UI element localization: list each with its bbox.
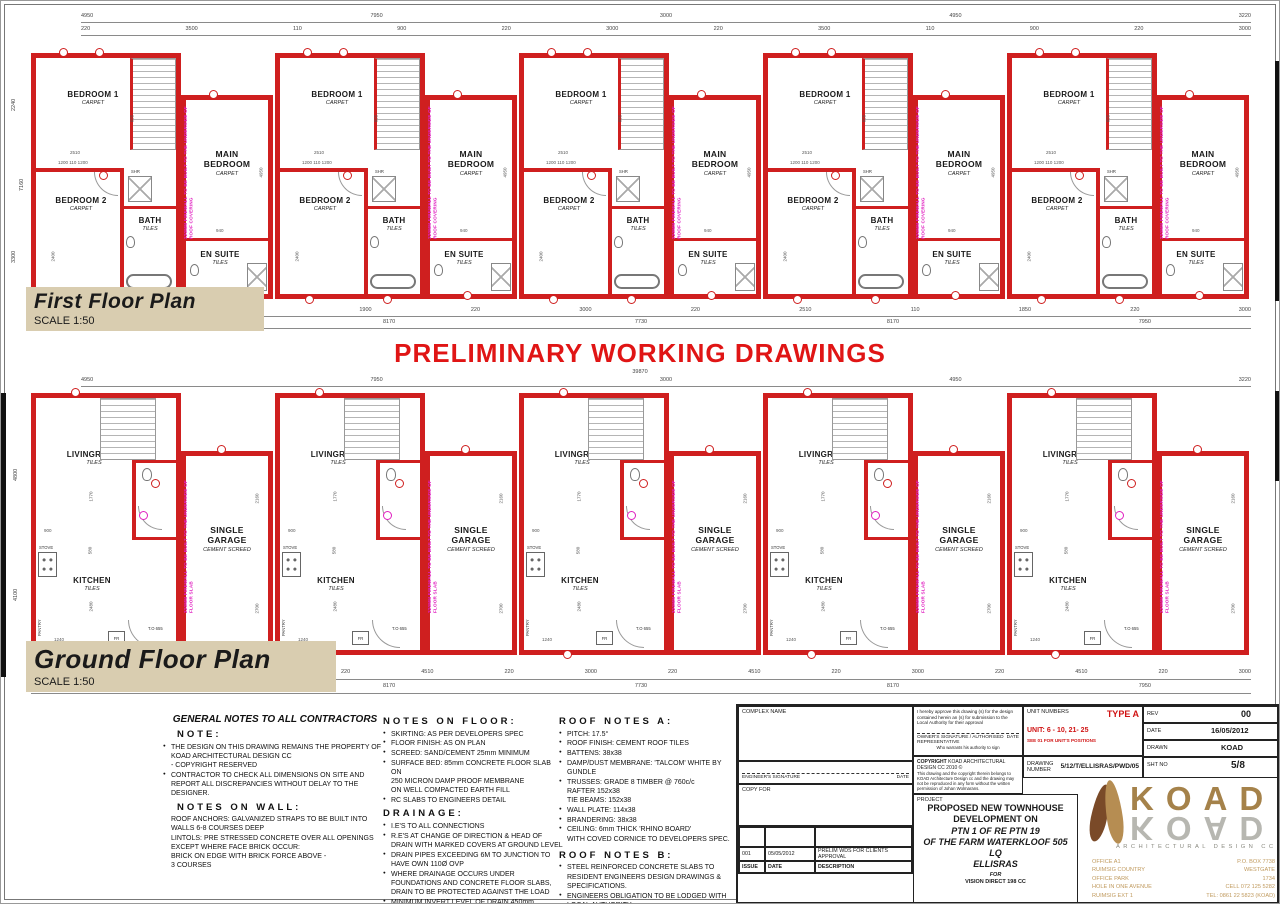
- staircase: [100, 398, 156, 460]
- plan-title: First Floor Plan: [34, 290, 254, 314]
- room-bath: BATH TILES: [368, 216, 420, 233]
- room-main-bedroom: MAIN BEDROOM CARPET: [1166, 150, 1240, 177]
- dimension-label: 4100: [13, 589, 19, 601]
- firewall-note: 220MM FIREWALL TO BE BUILT TO THE UNDERS…: [1159, 99, 1175, 239]
- dimension-label: 4950: [949, 13, 961, 19]
- geyser-mark: [627, 511, 636, 520]
- project-cell: PROJECT PROPOSED NEW TOWNHOUSE DEVELOPME…: [913, 794, 1078, 904]
- issue-number: 001: [739, 847, 765, 861]
- geyser-mark: [871, 511, 880, 520]
- drainage-heading: DRAINAGE:: [383, 808, 563, 821]
- opening-mark: [941, 90, 950, 99]
- dimension-label: 1200 110 1200: [1034, 160, 1064, 165]
- dimension-label: 7160: [19, 179, 25, 191]
- wc-fixture: [370, 236, 379, 248]
- date-cell: DATE 16/05/2012: [1143, 723, 1280, 740]
- room-garage: SINGLE GARAGE CEMENT SCREED: [436, 526, 506, 553]
- interior-wall: [376, 460, 420, 463]
- opening-mark: [1035, 48, 1044, 57]
- interior-wall: [1108, 537, 1152, 540]
- dimension-label: 1240: [542, 637, 552, 642]
- approval-text: I hereby approve this drawing (s) for th…: [917, 709, 1019, 726]
- drawing-number-label: DRAWING NUMBER: [1027, 759, 1061, 773]
- pantry-label: PANTRY: [1014, 606, 1019, 636]
- note-item: SCREED: SAND/CEMENT 25mm MINIMUM: [383, 749, 563, 758]
- interior-wall: [376, 460, 380, 540]
- opening-mark: [793, 295, 802, 304]
- dimension-label: 940: [460, 228, 468, 233]
- firewall-note: 220MM FIREWALL TO BE BUILT TO THE UNDERS…: [183, 99, 199, 239]
- shower-box: [1104, 176, 1128, 202]
- room-finish: TILES: [534, 460, 630, 466]
- note-item: BRANDERING: 38x38: [559, 816, 737, 825]
- dimension-label: 220: [471, 307, 480, 313]
- signature-line: [917, 726, 1019, 734]
- logo-zone: KOAD KOAD ARCHITECTURAL DESIGN CC OFFICE…: [1078, 778, 1279, 904]
- dimension-label: 2400: [295, 251, 300, 261]
- dimension-label: 4950: [1235, 167, 1240, 177]
- opening-mark: [151, 479, 160, 488]
- geyser-mark: [1115, 511, 1124, 520]
- contact-line: P.O. BOX 7738: [1206, 858, 1275, 866]
- opening-mark: [871, 295, 880, 304]
- engineer-signature-cell: ENGINEER'S SIGNATURE DATE: [738, 761, 913, 784]
- firewall-note: 220MM FIREWALL TO BE BUILT TO THE UNDERS…: [915, 463, 931, 613]
- room-main-bedroom: MAIN BEDROOM CARPET: [190, 150, 264, 177]
- dimension-label: 2160: [987, 493, 992, 503]
- bathtub: [614, 274, 660, 289]
- room-name: BATH: [856, 216, 908, 225]
- room-finish: TILES: [782, 586, 866, 592]
- dimension-label: 3000: [1239, 26, 1251, 32]
- dimension-label: 7730: [635, 683, 647, 689]
- room-name: BEDROOM 2: [774, 196, 852, 205]
- rev-label: REV: [1147, 709, 1181, 719]
- room-name: GARAGE: [924, 536, 994, 546]
- room-finish: CARPET: [536, 100, 626, 106]
- wc-fixture: [874, 468, 884, 481]
- wc-fixture: [922, 264, 931, 276]
- drawn-cell: DRAWN KOAD: [1143, 740, 1280, 757]
- dimension-label: 3000: [579, 307, 591, 313]
- room-finish: CARPET: [780, 100, 870, 106]
- issue-header: ISSUE: [739, 861, 765, 873]
- opening-mark: [705, 445, 714, 454]
- dimension-label: 4950: [81, 377, 93, 383]
- staircase: [1076, 398, 1132, 460]
- dimension-label: 580: [575, 547, 580, 555]
- room-name: KITCHEN: [294, 576, 378, 585]
- scan-edge-artifact: [1275, 61, 1279, 301]
- interior-wall: [120, 172, 124, 298]
- office-line: OFFICE A1: [1092, 858, 1152, 866]
- office-line: HOLE IN ONE AVENUE: [1092, 883, 1152, 891]
- townhouse-unit-first-floor: BEDROOM 1 CARPET BEDROOM 2 CARPET SHR BA…: [275, 53, 519, 303]
- pantry-label: PANTRY: [38, 606, 43, 636]
- shower-box: [860, 176, 884, 202]
- townhouse-unit-ground-floor: LIVINGROOM TILES KITCHEN TILES STOVE PAN…: [275, 393, 519, 659]
- dimension-label: 220: [505, 669, 514, 675]
- room-name: BEDROOM 1: [536, 90, 626, 99]
- issue-empty-cell: [765, 827, 815, 847]
- dimension-label: 1770: [577, 491, 582, 501]
- dimension-label: 220: [1159, 669, 1168, 675]
- room-main-bedroom: MAIN BEDROOM CARPET: [678, 150, 752, 177]
- dimension-label: 3000: [660, 377, 672, 383]
- townhouse-unit-ground-floor: LIVINGROOM TILES KITCHEN TILES STOVE PAN…: [1007, 393, 1251, 659]
- bathtub: [858, 274, 904, 289]
- firewall-note: 220MM FIREWALL TO BE BUILT TO THE UNDERS…: [915, 99, 931, 239]
- owner-signature-label: OWNER'S SIGNATURE / AUTHORISED REPRESENT…: [917, 735, 1007, 745]
- title-block: COMPLEX NAME ENGINEER'S SIGNATURE DATE C…: [736, 704, 1279, 904]
- room-name: BEDROOM 1: [1024, 90, 1114, 99]
- copy-for-cell: COPY FOR: [738, 784, 913, 826]
- note-item: CEILING: 6mm THICK 'RHINO BOARD' WITH CO…: [559, 825, 737, 843]
- dimension-label: 655: [861, 115, 866, 123]
- first-floor-plan-label: First Floor Plan SCALE 1:50: [26, 287, 264, 331]
- room-name: BEDROOM 1: [48, 90, 138, 99]
- project-line: PROPOSED NEW TOWNHOUSE: [917, 803, 1074, 814]
- note-item: ENGINEERS OBLIGATION TO BE LODGED WITH L…: [559, 892, 737, 904]
- room-finish: TILES: [1022, 460, 1118, 466]
- dimension-label: 3220: [1239, 377, 1251, 383]
- dimension-label: 3220: [1239, 13, 1251, 19]
- contact-line: TEL: 0861 22 5823 (KOAD): [1206, 892, 1275, 900]
- room-bedroom1: BEDROOM 1 CARPET: [1024, 90, 1114, 107]
- room-name: GARAGE: [192, 536, 262, 546]
- opening-mark: [949, 445, 958, 454]
- room-finish: CARPET: [434, 171, 508, 177]
- dimension-line: [31, 693, 1251, 694]
- opening-mark: [1051, 650, 1060, 659]
- dimension-label: 220: [1130, 307, 1139, 313]
- note-item: THE DESIGN ON THIS DRAWING REMAINS THE P…: [163, 743, 387, 771]
- geyser-mark: [139, 511, 148, 520]
- dimension-label: 2480: [577, 601, 582, 611]
- room-name: KITCHEN: [538, 576, 622, 585]
- room-finish: TILES: [46, 460, 142, 466]
- opening-mark: [883, 479, 892, 488]
- dimension-label: 220: [81, 26, 90, 32]
- fridge: FR: [596, 631, 613, 645]
- dimension-label: 220: [668, 669, 677, 675]
- dimension-label: 900: [44, 528, 52, 533]
- dimension-label: 2700: [743, 603, 748, 613]
- room-finish: CARPET: [1018, 206, 1096, 212]
- ground-floor-left-block: LIVINGROOM TILES KITCHEN TILES STOVE PAN…: [763, 393, 913, 655]
- dimension-label: 3000: [585, 669, 597, 675]
- dimension-label: 220: [1134, 26, 1143, 32]
- opening-mark: [303, 48, 312, 57]
- dimension-label: 220: [714, 26, 723, 32]
- koad-logo-reflection: KOAD: [1130, 812, 1275, 845]
- room-finish: CEMENT SCREED: [436, 547, 506, 553]
- room-name: BATH: [368, 216, 420, 225]
- project-line: ELLISRAS: [917, 859, 1074, 870]
- dimension-label: 2700: [499, 603, 504, 613]
- dimension-label: 2510: [802, 150, 812, 155]
- floor-notes-heading: NOTES ON FLOOR:: [383, 716, 563, 729]
- room-name: BEDROOM 1: [292, 90, 382, 99]
- opening-mark: [305, 295, 314, 304]
- room-name: BEDROOM: [678, 160, 752, 170]
- dimension-label: 2510: [1046, 150, 1056, 155]
- fridge: FR: [840, 631, 857, 645]
- room-bath: BATH TILES: [612, 216, 664, 233]
- opening-mark: [549, 295, 558, 304]
- room-garage: SINGLE GARAGE CEMENT SCREED: [680, 526, 750, 553]
- dimension-label: 110: [911, 307, 920, 313]
- stove-label: STOVE: [1015, 546, 1029, 551]
- interior-wall: [864, 460, 868, 540]
- room-name: EN SUITE: [920, 250, 984, 259]
- opening-mark: [461, 445, 470, 454]
- opening-mark: [463, 291, 472, 300]
- wc-fixture: [1118, 468, 1128, 481]
- opening-mark: [59, 48, 68, 57]
- scan-edge-artifact: [1275, 391, 1279, 481]
- room-ensuite: EN SUITE TILES: [920, 250, 984, 267]
- stove-label: STOVE: [771, 546, 785, 551]
- issue-table: 001 05/05/2012 PRELIM WDS FOR CLIENTS AP…: [738, 826, 913, 874]
- opening-mark: [697, 90, 706, 99]
- shower-box: [128, 176, 152, 202]
- room-name: GARAGE: [436, 536, 506, 546]
- room-name: KITCHEN: [782, 576, 866, 585]
- type-label: TYPE A: [1107, 709, 1139, 719]
- opening-mark: [99, 171, 108, 180]
- wc-fixture: [678, 264, 687, 276]
- staircase: [1106, 58, 1152, 150]
- shower-box: [372, 176, 396, 202]
- dimension-label: 2510: [558, 150, 568, 155]
- complex-name-cell: COMPLEX NAME: [738, 706, 913, 761]
- issue-date: 05/05/2012: [765, 847, 815, 861]
- townhouse-unit-ground-floor: LIVINGROOM TILES KITCHEN TILES STOVE PAN…: [519, 393, 763, 659]
- townhouse-unit-first-floor: BEDROOM 1 CARPET BEDROOM 2 CARPET SHR BA…: [31, 53, 275, 303]
- wc-fixture: [142, 468, 152, 481]
- note-item: ROOF FINISH: CEMENT ROOF TILES: [559, 739, 737, 748]
- dimension-label: 4950: [503, 167, 508, 177]
- room-bedroom1: BEDROOM 1 CARPET: [48, 90, 138, 107]
- interior-wall: [864, 460, 908, 463]
- opening-mark: [547, 48, 556, 57]
- staircase: [130, 58, 176, 150]
- note-item: SURFACE BED: 85mm CONCRETE FLOOR SLAB ON…: [383, 759, 563, 796]
- dimension-label: 8170: [887, 683, 899, 689]
- room-bedroom2: BEDROOM 2 CARPET: [530, 196, 608, 213]
- room-bedroom1: BEDROOM 1 CARPET: [780, 90, 870, 107]
- preliminary-banner: PRELIMINARY WORKING DRAWINGS: [1, 338, 1279, 369]
- dimension-label: 2160: [255, 493, 260, 503]
- note-item: BATTENS: 38x38: [559, 749, 737, 758]
- dimension-label: 4510: [748, 669, 760, 675]
- note-item: WHERE DRAINAGE OCCURS UNDER FOUNDATIONS …: [383, 870, 563, 898]
- date-label: DATE: [1007, 735, 1019, 745]
- room-ensuite: EN SUITE TILES: [188, 250, 252, 267]
- stove: [1014, 552, 1033, 577]
- sheet-number-value: 5/8: [1231, 760, 1245, 771]
- room-finish: TILES: [1026, 586, 1110, 592]
- room-finish: TILES: [1100, 226, 1152, 232]
- dimension-line: [81, 35, 1251, 36]
- dimension-label: 4510: [421, 669, 433, 675]
- room-kitchen: KITCHEN TILES: [1026, 576, 1110, 593]
- rev-cell: REV 00: [1143, 706, 1280, 723]
- plan-scale: SCALE 1:50: [34, 315, 254, 327]
- note-item: R.E'S AT CHANGE OF DIRECTION & HEAD OF D…: [383, 832, 563, 850]
- dimension-label: 655: [373, 115, 378, 123]
- stove: [526, 552, 545, 577]
- dimension-label: 3500: [185, 26, 197, 32]
- note-item: DAMP/DUST MEMBRANE: 'TALCOM' WHITE BY GU…: [559, 759, 737, 777]
- dimension-label: 8170: [383, 319, 395, 325]
- dimension-label: 2510: [314, 150, 324, 155]
- dimension-label: 7730: [635, 319, 647, 325]
- note-item: I.E'S TO ALL CONNECTIONS: [383, 822, 563, 831]
- wc-fixture: [386, 468, 396, 481]
- dimension-label: 1770: [333, 491, 338, 501]
- room-main-bedroom: MAIN BEDROOM CARPET: [434, 150, 508, 177]
- stove: [38, 552, 57, 577]
- opening-mark: [217, 445, 226, 454]
- wc-fixture: [614, 236, 623, 248]
- opening-mark: [1071, 48, 1080, 57]
- dimension-label: 1200 110 1200: [302, 160, 332, 165]
- dimension-strip-gf-bottom-minor: 220 4510 220 3000 220 4510 220 3000 220 …: [341, 669, 1251, 675]
- interior-wall: [620, 537, 664, 540]
- general-notes-heading: GENERAL NOTES TO ALL CONTRACTORS: [163, 713, 387, 726]
- dimension-label: 655: [617, 115, 622, 123]
- room-name: BEDROOM 1: [780, 90, 870, 99]
- door-swing-arc: [372, 620, 400, 648]
- opening-mark: [1185, 90, 1194, 99]
- opening-mark: [559, 388, 568, 397]
- dimension-label: 2160: [499, 493, 504, 503]
- note-item: DRAIN PIPES EXCEEDING 6M TO JUNCTION TO …: [383, 851, 563, 869]
- dimension-label: 7950: [1139, 319, 1151, 325]
- dimension-label: 1770: [89, 491, 94, 501]
- shower-box: [616, 176, 640, 202]
- unit-range: UNIT: 6 - 10, 21- 25: [1027, 727, 1139, 734]
- dimension-label: 2160: [743, 493, 748, 503]
- interior-wall: [608, 206, 664, 209]
- complex-name-label: COMPLEX NAME: [742, 709, 786, 715]
- dimension-label: 1900: [359, 307, 371, 313]
- room-finish: TILES: [124, 226, 176, 232]
- wall-notes-heading: NOTES ON WALL:: [177, 802, 387, 815]
- project-for-label: FOR: [917, 872, 1074, 878]
- room-finish: CARPET: [774, 206, 852, 212]
- room-bedroom1: BEDROOM 1 CARPET: [536, 90, 626, 107]
- note-item: PITCH: 17.5°: [559, 730, 737, 739]
- roof-notes-b-heading: ROOF NOTES B:: [559, 850, 737, 863]
- stove-label: STOVE: [283, 546, 297, 551]
- dimension-label: 2400: [1027, 251, 1032, 261]
- logo-swoosh: [1102, 779, 1127, 845]
- unit-numbers-label: UNIT NUMBERS: [1027, 709, 1069, 719]
- room-finish: TILES: [294, 586, 378, 592]
- dimension-label: 2510: [70, 150, 80, 155]
- copyright-cell: COPYRIGHT KOAD ARCHITECTURAL DESIGN CC 2…: [913, 756, 1023, 794]
- drawing-sheet: 4950 7950 3000 4950 3220 220 3500 110 90…: [0, 0, 1280, 904]
- interior-wall: [364, 206, 420, 209]
- issue-empty-cell: [739, 827, 765, 847]
- note-item: WALL PLATE: 114x38: [559, 806, 737, 815]
- shower-box: [735, 263, 755, 291]
- wc-fixture: [630, 468, 640, 481]
- room-name: BEDROOM: [1166, 160, 1240, 170]
- note-subheading: NOTE:: [177, 729, 387, 742]
- dimension-label: 2700: [987, 603, 992, 613]
- interior-wall: [1108, 460, 1152, 463]
- rev-value: 00: [1241, 709, 1251, 719]
- room-name: GARAGE: [680, 536, 750, 546]
- room-finish: CARPET: [190, 171, 264, 177]
- opening-mark: [791, 48, 800, 57]
- dimension-label: 900: [532, 528, 540, 533]
- room-name: EN SUITE: [1164, 250, 1228, 259]
- bathtub: [370, 274, 416, 289]
- room-bedroom2: BEDROOM 2 CARPET: [42, 196, 120, 213]
- dimension-label: 900: [397, 26, 406, 32]
- ground-floor-left-block: LIVINGROOM TILES KITCHEN TILES STOVE PAN…: [519, 393, 669, 655]
- dimension-label: 3300: [11, 251, 17, 263]
- interior-wall: [620, 460, 624, 540]
- engineer-signature-label: ENGINEER'S SIGNATURE: [742, 775, 800, 780]
- dimension-label: 940: [1192, 228, 1200, 233]
- room-bath: BATH TILES: [856, 216, 908, 233]
- room-name: EN SUITE: [676, 250, 740, 259]
- dimension-label: 1240: [786, 637, 796, 642]
- room-finish: CARPET: [1166, 171, 1240, 177]
- dimension-label: 655: [1105, 115, 1110, 123]
- room-finish: CEMENT SCREED: [192, 547, 262, 553]
- dimension-label: 3500: [818, 26, 830, 32]
- room-name: KITCHEN: [50, 576, 134, 585]
- pantry-label: PANTRY: [282, 606, 287, 636]
- issue-description: PRELIM WDS FOR CLIENTS APPROVAL: [815, 847, 912, 861]
- note-item: CONTRACTOR TO CHECK ALL DIMENSIONS ON SI…: [163, 771, 387, 799]
- room-name: BEDROOM: [190, 160, 264, 170]
- unit-numbers-cell: UNIT NUMBERS TYPE A UNIT: 6 - 10, 21- 25…: [1023, 706, 1143, 756]
- staircase: [832, 398, 888, 460]
- room-bedroom2: BEDROOM 2 CARPET: [1018, 196, 1096, 213]
- room-name: BATH: [612, 216, 664, 225]
- dimension-label: 2240: [11, 99, 17, 111]
- opening-mark: [563, 650, 572, 659]
- interior-wall: [364, 172, 368, 298]
- note-item: FLOOR FINISH: AS ON PLAN: [383, 739, 563, 748]
- first-floor-units: BEDROOM 1 CARPET BEDROOM 2 CARPET SHR BA…: [31, 53, 1251, 303]
- contact-line: CELL 072 125 5282: [1206, 883, 1275, 891]
- townhouse-unit-ground-floor: LIVINGROOM TILES KITCHEN TILES STOVE PAN…: [763, 393, 1007, 659]
- room-finish: TILES: [856, 226, 908, 232]
- room-main-bedroom: MAIN BEDROOM CARPET: [922, 150, 996, 177]
- note-item: TRUSSES: GRADE 8 TIMBER @ 760c/c RAFTER …: [559, 778, 737, 806]
- note-item: MINIMUM INVERT LEVEL OF DRAIN 450mm: [383, 898, 563, 904]
- opening-mark: [639, 479, 648, 488]
- office-line: RUIMSIG EXT 1: [1092, 892, 1152, 900]
- opening-mark: [1075, 171, 1084, 180]
- staircase: [862, 58, 908, 150]
- interior-wall: [1096, 206, 1152, 209]
- stove-label: STOVE: [39, 546, 53, 551]
- contact-details: P.O. BOX 7738 WESTGATE 1734 CELL 072 125…: [1206, 858, 1275, 900]
- firewall-note: 220MM FIREWALL TO BE BUILT TO THE UNDERS…: [427, 463, 443, 613]
- dimension-label: 1770: [1065, 491, 1070, 501]
- geyser-mark: [383, 511, 392, 520]
